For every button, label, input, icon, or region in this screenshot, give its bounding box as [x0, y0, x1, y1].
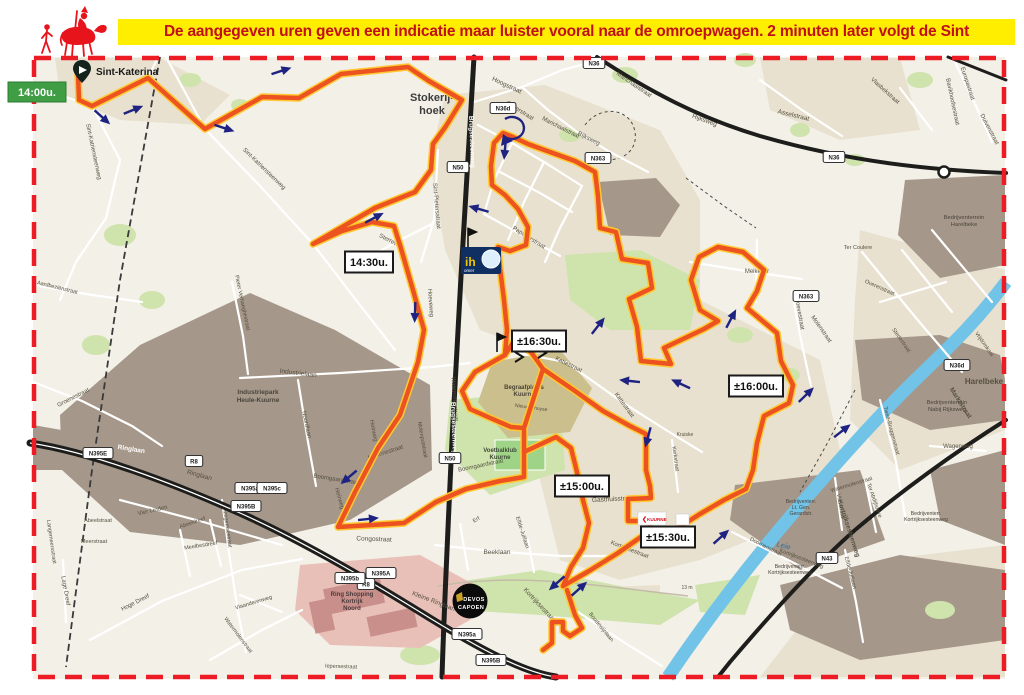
svg-text:DEVOS: DEVOS — [463, 597, 485, 603]
street-label: Congostraat — [356, 535, 392, 543]
road-shield-label: N36 — [588, 61, 600, 67]
svg-text:CAPOEN: CAPOEN — [458, 605, 484, 611]
street-label: 13 m — [681, 585, 692, 591]
svg-text:ih: ih — [465, 255, 476, 269]
street-label: Wagenweg — [943, 444, 973, 450]
street-label: Ter Coulere — [844, 245, 872, 251]
road-shield-label: N395c — [263, 486, 281, 492]
road-shield-label: N50 — [452, 165, 464, 171]
time-marker-label: ±15:00u. — [560, 481, 604, 493]
road-shield-label: N36d — [496, 106, 511, 112]
time-marker-label: ±16:00u. — [734, 381, 778, 393]
time-marker-label: ±16:30u. — [517, 336, 561, 348]
street-label: Beeklaan — [483, 549, 510, 556]
time-marker-label: 14:30u. — [350, 257, 388, 269]
road-shield-label: N43 — [821, 556, 833, 562]
road-shield-label: R8 — [190, 459, 198, 465]
street-label: Kruiske — [677, 432, 694, 438]
street-label: Iepersestraat — [325, 663, 358, 670]
road-shield-label: N395a — [458, 632, 476, 638]
road-shield-label: N395B — [482, 658, 501, 664]
road-shield-label: N363 — [799, 294, 814, 300]
road-shield-label: N395b — [341, 576, 359, 582]
time-marker-label: ±15:30u. — [646, 532, 690, 544]
road-shield-label: N395A — [372, 571, 391, 577]
street-label: Abeelstraat — [84, 518, 112, 524]
road-shield-label: N36 — [828, 155, 840, 161]
street-label: Meerstraat — [81, 539, 108, 545]
route-map: Sint-KatriensteenwegSint-Katriensteenweg… — [0, 0, 1024, 695]
road-shield-label: N363 — [591, 156, 606, 162]
ih-logo: ih omer — [461, 247, 501, 274]
road-shield-label: N395E — [89, 451, 107, 457]
start-place-label: Sint-Katerina — [96, 67, 159, 78]
svg-text:KUURNE: KUURNE — [647, 517, 667, 522]
devos-capoen-logo: DEVOS CAPOEN — [453, 584, 488, 619]
start-time-badge: 14:00u. — [8, 82, 66, 102]
street-label: Harelbeke — [965, 377, 1004, 386]
area-label: IndustrieparkHeule-Kuurne — [237, 389, 280, 404]
road-shield-label: N395B — [237, 504, 256, 510]
poster: De aangegeven uren geven een indicatie m… — [0, 0, 1024, 695]
svg-text:omer: omer — [464, 268, 475, 273]
kuurne-shop-logo: ❮ KUURNE — [638, 512, 689, 525]
road-shield-label: N36d — [950, 363, 965, 369]
roundabout — [939, 167, 950, 178]
start-time-label: 14:00u. — [18, 87, 56, 99]
area-label: BedrijventerreinNabij Rijksweg — [927, 400, 968, 413]
road-shield-label: N50 — [444, 456, 456, 462]
